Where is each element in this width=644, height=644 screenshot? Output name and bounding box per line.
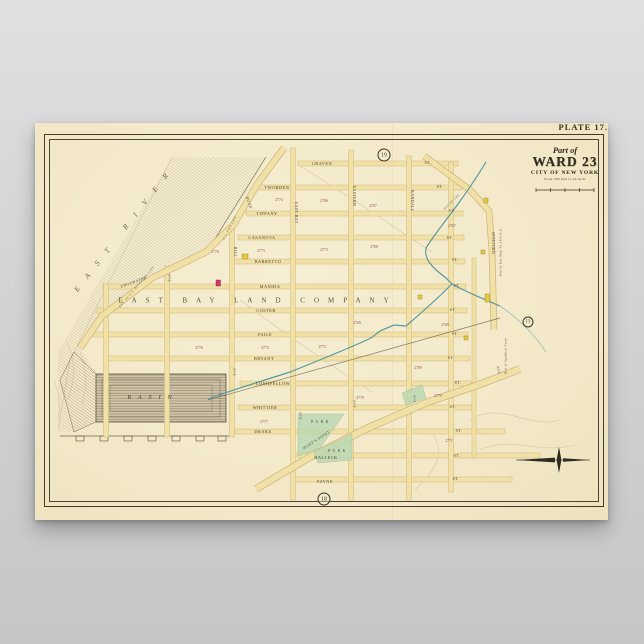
street-suffix-label: ST. xyxy=(425,161,432,165)
block-number: 2770 xyxy=(434,395,442,399)
street-label: TIFFANY xyxy=(256,212,277,216)
block-number: 2771 xyxy=(445,440,453,444)
street-label: PAYNE xyxy=(317,480,333,484)
avenue-label: EASTERN xyxy=(351,186,355,207)
street-suffix-label: ST. xyxy=(452,332,459,336)
block-number: 2786 xyxy=(320,200,328,204)
map-title-block: Part of WARD 23 CITY OF NEW YORK Scale 2… xyxy=(522,146,608,200)
water-label: EAST RIVER xyxy=(73,163,177,293)
block-number: 2773 xyxy=(320,249,328,253)
block-number: 2788 xyxy=(370,246,378,250)
street-label: DRAKE xyxy=(254,430,271,434)
shore-note: U.S. PIER LINE xyxy=(222,216,237,241)
street-suffix-label: ST. xyxy=(450,308,457,312)
street-suffix-label: ST. xyxy=(447,236,454,240)
park-label: PARK xyxy=(328,450,348,454)
street-label: BRYANT xyxy=(254,357,274,361)
block-number: 2777 xyxy=(260,421,268,425)
street-suffix-label: ST. xyxy=(456,429,463,433)
block-number: 2773 xyxy=(318,346,326,350)
street-label: MANIDA xyxy=(260,285,281,289)
avenue-label: AVE xyxy=(412,395,415,403)
block-number: 2769 xyxy=(441,324,449,328)
block-number: 2770 xyxy=(356,397,364,401)
scene-background: CRAVENTWORDENTIFFANYCASANOVABARRETTOMANI… xyxy=(0,0,644,644)
avenue-label: AVE. xyxy=(495,366,501,376)
street-label: COSTER xyxy=(256,309,275,313)
map-labels-layer: CRAVENTWORDENTIFFANYCASANOVABARRETTOMANI… xyxy=(0,0,644,644)
street-label: TWORDEN xyxy=(265,186,290,190)
boundary-note: Bnd of Spofford Farm xyxy=(505,338,508,374)
avenue-label: HILL xyxy=(232,247,236,258)
block-number: 2769 xyxy=(414,367,422,371)
block-number: 2776 xyxy=(195,347,203,351)
water-label: BASIN xyxy=(127,395,178,401)
title-city: CITY OF NEW YORK xyxy=(522,170,608,177)
street-suffix-label: ST. xyxy=(449,209,456,213)
street-label: FAILE xyxy=(258,333,272,337)
street-suffix-label: ST. xyxy=(448,356,455,360)
land-company-label: EAST BAY LAND COMPANY xyxy=(118,298,397,305)
street-label: CASANOVA xyxy=(248,236,275,240)
street-label: LONGFELLOW xyxy=(256,382,290,386)
street-suffix-label: ST. xyxy=(452,258,459,262)
block-number: 2787 xyxy=(369,205,377,209)
park-label: PARK xyxy=(311,421,331,425)
avenue-label: SPOFFORD xyxy=(490,232,494,254)
street-label: BARRETTO xyxy=(255,260,282,264)
title-ward: WARD 23 xyxy=(522,155,608,170)
block-number: 2773 xyxy=(261,347,269,351)
block-number: 2769 xyxy=(353,322,361,326)
block-number: 2774 xyxy=(275,199,283,203)
avenue-label: AVE xyxy=(298,412,301,420)
street-suffix-label: ST. xyxy=(437,185,444,189)
avenue-label: EAST BAY xyxy=(293,202,297,224)
circled-plate-ref: 13 xyxy=(523,317,534,328)
circled-plate-ref: 19 xyxy=(378,149,391,162)
street-label: HALLECK xyxy=(314,456,338,460)
block-number: 2767 xyxy=(448,225,456,229)
plate-number: PLATE 17. xyxy=(546,122,608,132)
block-number: 2773 xyxy=(257,250,265,254)
street-suffix-label: ST. xyxy=(450,405,457,409)
street-suffix-label: ST. xyxy=(453,477,460,481)
street-suffix-label: ST. xyxy=(454,284,461,288)
circled-plate-ref: 18 xyxy=(318,493,331,506)
title-scale-note: Scale 200 feet to an inch. xyxy=(522,177,608,182)
avenue-label: AVE xyxy=(232,368,235,376)
boundary-note: Bnd of Par Map 15 24th W.F. xyxy=(500,228,503,277)
avenue-label: AVE xyxy=(167,274,170,282)
avenue-label: AVE xyxy=(352,400,355,408)
scale-bar xyxy=(530,187,600,195)
road-label: HUNT'S POINT xyxy=(303,431,331,451)
road-label: ROAD xyxy=(244,196,252,209)
street-suffix-label: ST. xyxy=(454,454,461,458)
avenue-label: RANDALL xyxy=(409,190,413,212)
block-number: 2776 xyxy=(211,251,219,255)
street-label: CRAVEN xyxy=(312,162,332,166)
street-suffix-label: ST. xyxy=(455,381,462,385)
street-label: WHITTIER xyxy=(253,406,278,410)
